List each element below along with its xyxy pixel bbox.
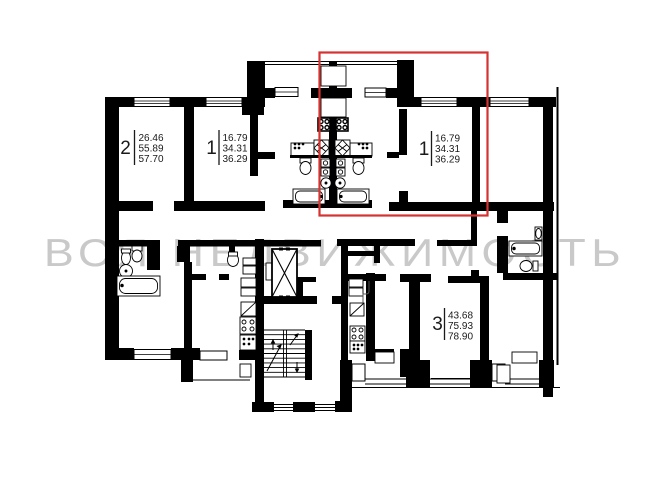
svg-text:16.79: 16.79 xyxy=(223,133,248,144)
svg-text:75.93: 75.93 xyxy=(448,321,473,332)
svg-text:43.68: 43.68 xyxy=(448,311,473,322)
svg-text:1: 1 xyxy=(419,139,430,160)
svg-text:26.46: 26.46 xyxy=(139,133,164,144)
svg-text:34.31: 34.31 xyxy=(223,144,248,155)
svg-text:16.79: 16.79 xyxy=(435,134,460,145)
svg-text:78.90: 78.90 xyxy=(448,332,473,343)
svg-text:3: 3 xyxy=(432,314,443,335)
svg-text:1: 1 xyxy=(206,138,217,159)
svg-text:55.89: 55.89 xyxy=(139,144,164,155)
svg-text:34.31: 34.31 xyxy=(435,144,460,155)
svg-text:2: 2 xyxy=(120,138,131,159)
svg-text:36.29: 36.29 xyxy=(435,155,460,166)
svg-text:36.29: 36.29 xyxy=(223,154,248,165)
svg-text:57.70: 57.70 xyxy=(139,154,164,165)
